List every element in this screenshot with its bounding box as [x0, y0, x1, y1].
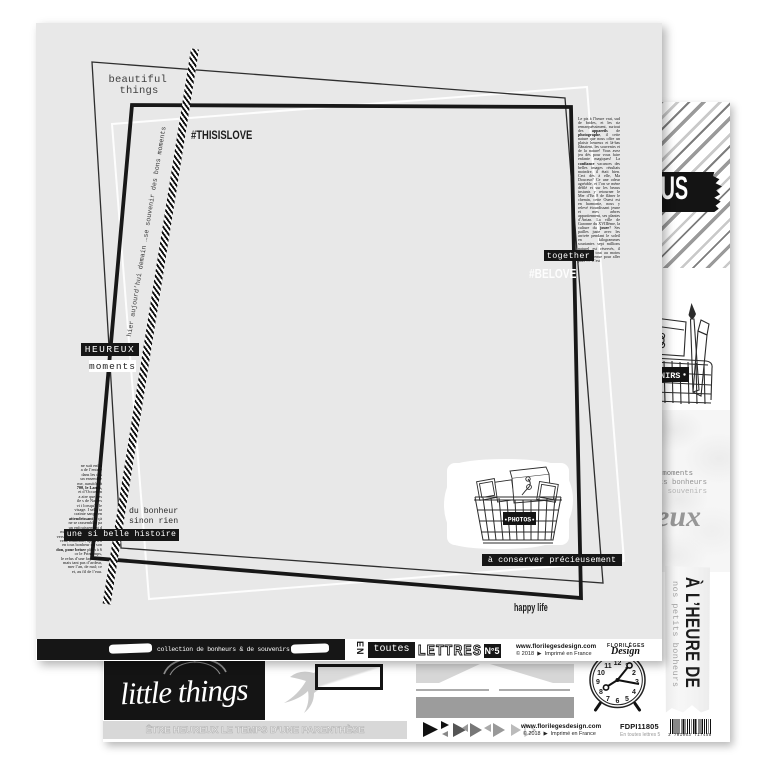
svg-text:•PHOTOS•: •PHOTOS• [504, 517, 535, 524]
